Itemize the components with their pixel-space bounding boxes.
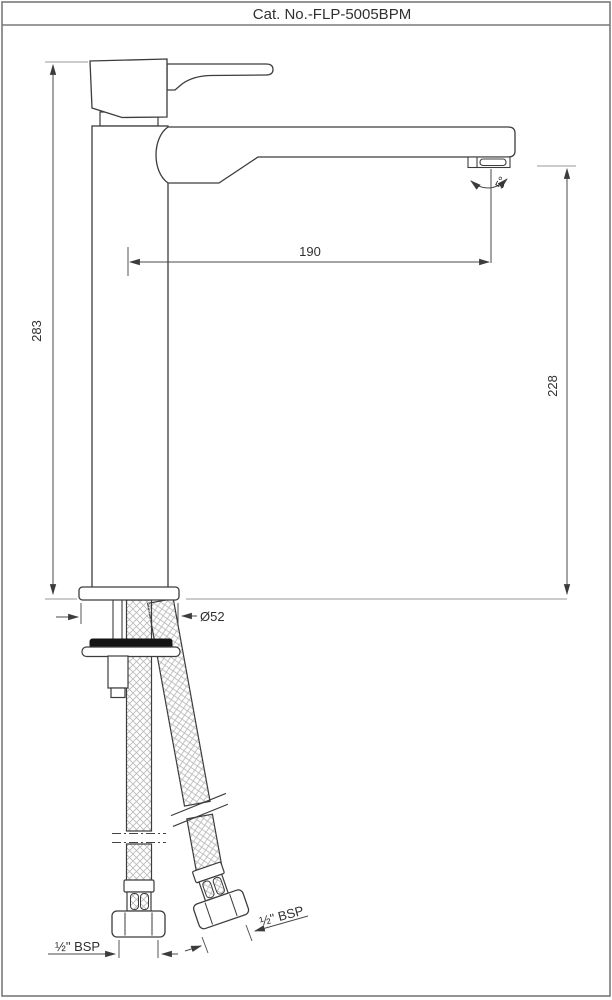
washer-flange	[82, 647, 180, 657]
mounting-stud	[108, 656, 128, 698]
overall-height-label: 283	[29, 320, 44, 342]
left-hose-thread-label: ½" BSP	[55, 939, 100, 954]
base-diameter-label: Ø52	[200, 609, 225, 624]
hex-nut	[112, 911, 165, 937]
catalog-number-label: Cat. No.-FLP-5005BPM	[253, 6, 411, 23]
handle-body	[90, 59, 167, 118]
spout-reach-label: 190	[299, 244, 321, 259]
faucet-body	[92, 126, 168, 588]
drawing-page: Cat. No.-FLP-5005BPM	[0, 0, 612, 1000]
ferrule	[124, 880, 154, 892]
spout-height-label: 228	[545, 375, 560, 397]
technical-drawing: Cat. No.-FLP-5005BPM	[0, 0, 612, 1000]
aerator	[468, 157, 510, 168]
base-flange	[79, 587, 179, 600]
